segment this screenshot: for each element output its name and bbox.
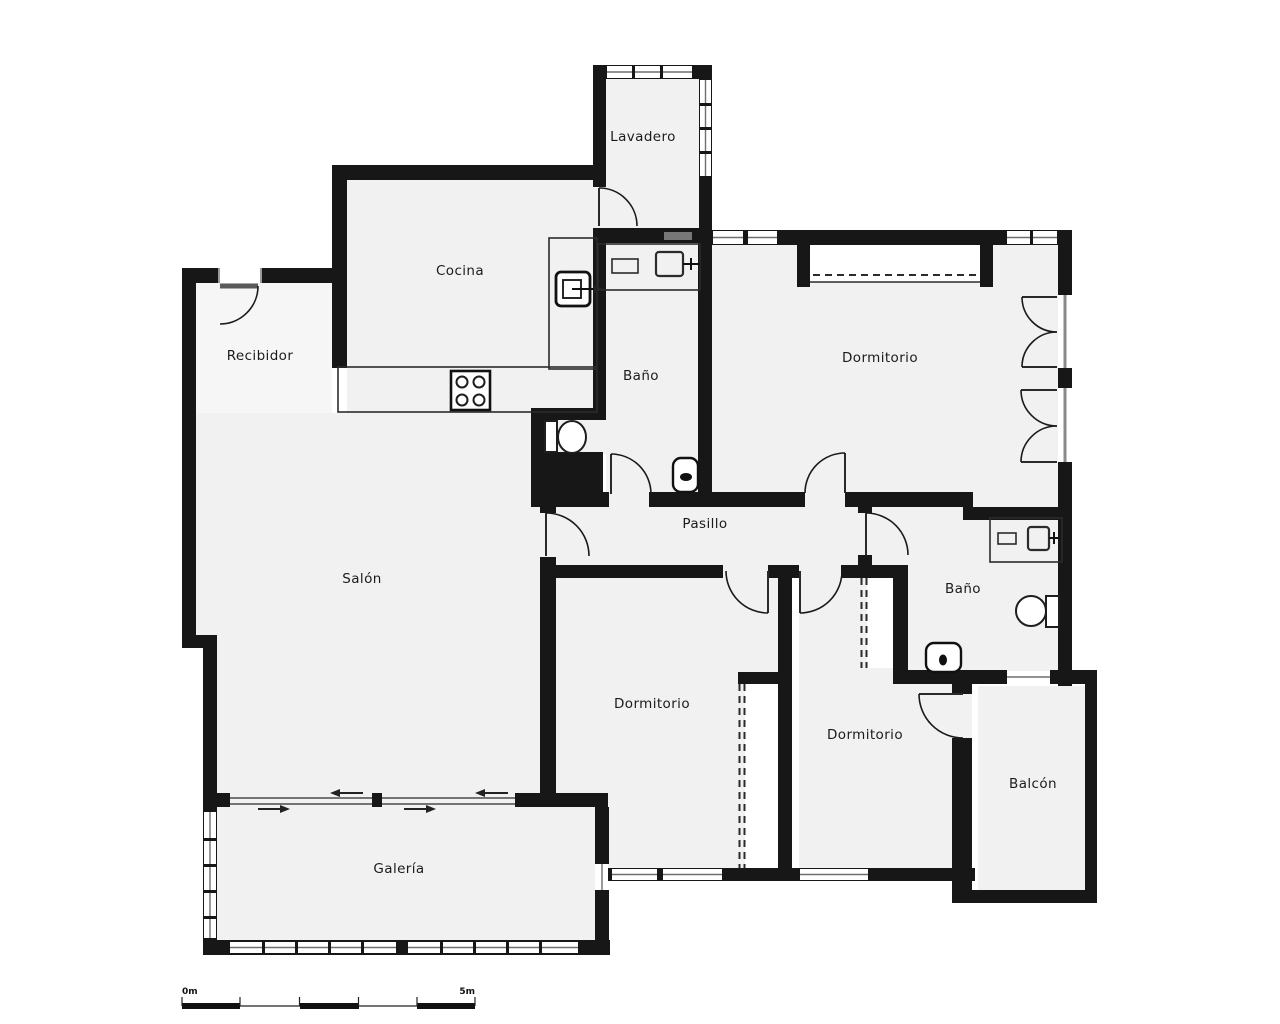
room-label-balcon: Balcón bbox=[1009, 776, 1057, 792]
wardrobe-icon bbox=[740, 684, 779, 868]
room-floor-salon bbox=[196, 413, 540, 793]
room-label-bano-1: Baño bbox=[623, 368, 659, 384]
floor-plan-page: Lavadero Cocina Recibidor Baño Dormitori… bbox=[0, 0, 1280, 1024]
room-label-dormitorio-principal: Dormitorio bbox=[842, 350, 918, 366]
scale-start-label: 0m bbox=[182, 987, 198, 997]
stove-icon bbox=[451, 371, 490, 410]
room-floor-dormitorio-principal bbox=[712, 245, 1058, 507]
toilet-icon bbox=[1016, 596, 1059, 627]
window-icon bbox=[664, 232, 692, 240]
room-label-pasillo: Pasillo bbox=[682, 516, 727, 532]
scale-bar: 0m 5m bbox=[182, 987, 475, 1009]
room-label-dormitorio-3: Dormitorio bbox=[827, 727, 903, 743]
toilet-icon bbox=[545, 421, 586, 453]
room-label-cocina: Cocina bbox=[436, 263, 484, 279]
room-label-lavadero: Lavadero bbox=[610, 129, 676, 145]
room-label-galeria: Galería bbox=[373, 861, 424, 877]
scale-end-label: 5m bbox=[459, 987, 475, 997]
window-icon bbox=[1007, 671, 1050, 683]
window-icon bbox=[607, 66, 692, 78]
bidet-icon bbox=[673, 458, 698, 492]
entry-threshold bbox=[218, 268, 262, 283]
room-label-recibidor: Recibidor bbox=[227, 348, 294, 364]
room-label-dormitorio-2: Dormitorio bbox=[614, 696, 690, 712]
floors bbox=[196, 79, 1085, 943]
room-label-salon: Salón bbox=[342, 571, 381, 587]
wardrobe-icon bbox=[810, 245, 980, 282]
bidet-icon bbox=[926, 643, 961, 672]
window-icon bbox=[700, 80, 711, 176]
room-label-bano-2: Baño bbox=[945, 581, 981, 597]
window-icon bbox=[204, 812, 216, 938]
room-floor-lavadero bbox=[606, 79, 699, 230]
window-icon bbox=[596, 864, 608, 890]
floor-plan: Lavadero Cocina Recibidor Baño Dormitori… bbox=[0, 0, 1280, 1024]
